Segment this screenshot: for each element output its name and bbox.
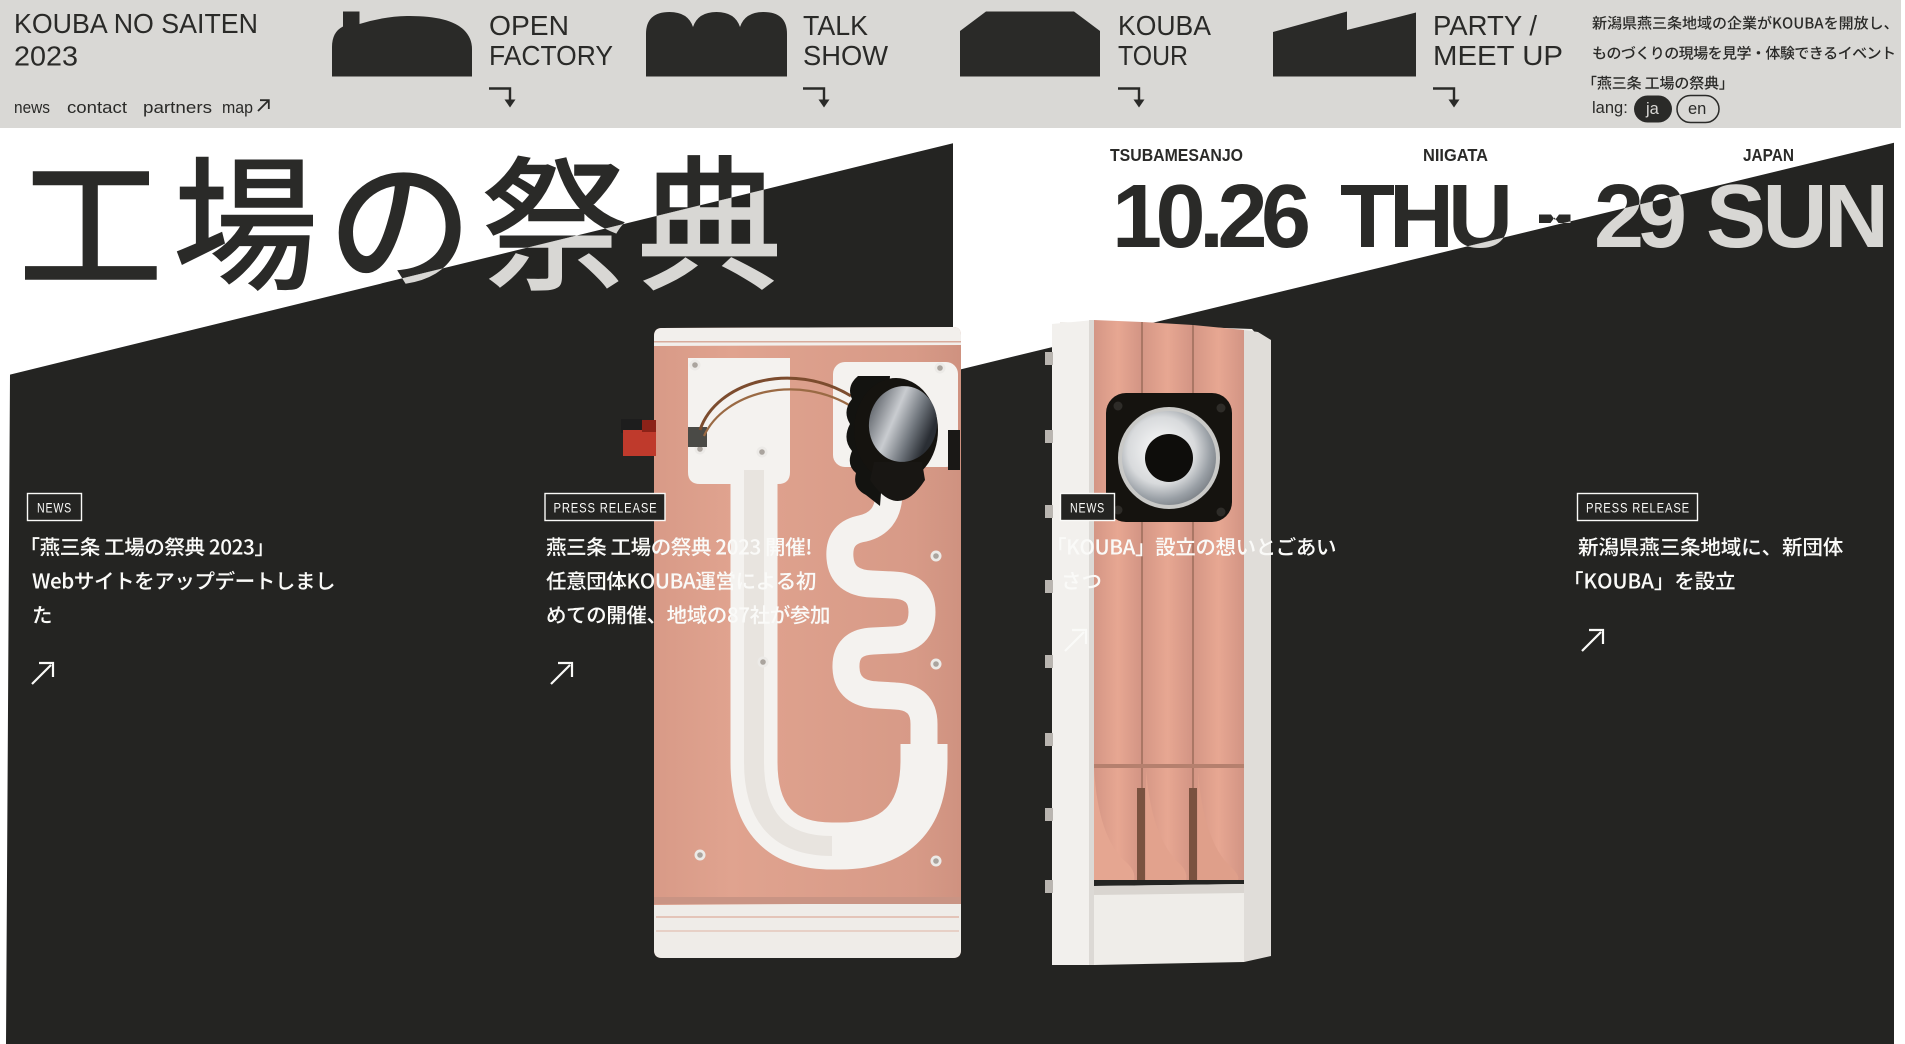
svg-text:KOUBA NO SAITEN: KOUBA NO SAITEN: [14, 8, 258, 39]
svg-text:NIIGATA: NIIGATA: [1423, 145, 1488, 165]
svg-text:ja: ja: [1645, 100, 1660, 118]
svg-text:SUN: SUN: [1706, 167, 1889, 267]
svg-text:contact: contact: [67, 99, 127, 117]
svg-text:MEET UP: MEET UP: [1433, 40, 1563, 71]
svg-text:news: news: [14, 99, 50, 117]
svg-text:10.26: 10.26: [1112, 167, 1311, 267]
svg-text:en: en: [1688, 100, 1706, 118]
svg-text:OPEN: OPEN: [489, 10, 569, 41]
svg-text:PRESS RELEASE: PRESS RELEASE: [1586, 501, 1690, 516]
svg-text:TOUR: TOUR: [1118, 40, 1188, 71]
svg-text:partners: partners: [143, 99, 212, 117]
svg-text:map: map: [222, 99, 253, 117]
svg-text:PARTY /: PARTY /: [1433, 10, 1537, 41]
svg-text:NEWS: NEWS: [1070, 501, 1105, 516]
svg-text:lang:: lang:: [1592, 99, 1628, 117]
svg-text:KOUBA: KOUBA: [1118, 10, 1212, 41]
svg-text:FACTORY: FACTORY: [489, 40, 613, 71]
svg-text:JAPAN: JAPAN: [1743, 145, 1794, 165]
svg-text:NEWS: NEWS: [37, 501, 72, 516]
svg-text:TSUBAMESANJO: TSUBAMESANJO: [1110, 145, 1243, 165]
svg-text:SHOW: SHOW: [803, 40, 888, 71]
svg-text:PRESS RELEASE: PRESS RELEASE: [554, 501, 658, 516]
svg-text:TALK: TALK: [803, 10, 869, 41]
svg-text:2023: 2023: [14, 41, 78, 72]
